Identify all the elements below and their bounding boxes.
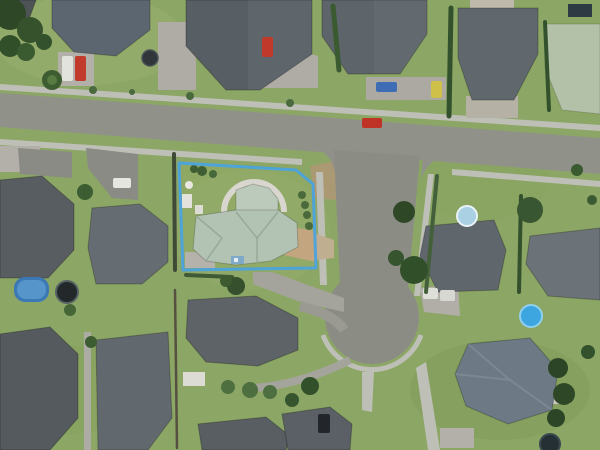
left-mid-trees-part: [77, 184, 93, 200]
parcel-east-shrubs-part: [303, 211, 311, 219]
aerial-map-stage: [0, 0, 600, 450]
palm-tree-part: [47, 75, 57, 85]
car-blue: [376, 82, 397, 92]
bulb-area-trees-part: [301, 377, 319, 395]
dome-pool-right: [457, 206, 477, 226]
hedge-parcel-west-part: [174, 154, 175, 270]
aerial-imagery[interactable]: [0, 0, 600, 450]
hedges-top-part: [449, 8, 451, 116]
car-white-house7: [113, 178, 131, 188]
footpath-stub-south: [362, 372, 374, 412]
junction-trees-part: [400, 256, 428, 284]
parcel-front-shrubs-part: [197, 166, 207, 176]
hero-shed-1: [182, 194, 192, 208]
car-black-bottom: [318, 414, 330, 433]
tree-cluster-top-left-part: [36, 34, 52, 50]
bottom-right-trees-part: [547, 409, 565, 427]
house-roof-9: [96, 332, 172, 450]
parcel-east-shrubs-part: [305, 222, 313, 230]
left-mid-trees-part: [85, 336, 97, 348]
bush-row-bottom-part: [263, 385, 277, 399]
garden-path-bl: [84, 332, 91, 450]
bush-row-bottom-part: [221, 380, 235, 394]
hero-shed-2: [195, 205, 203, 214]
shed-bottom-mid: [183, 372, 205, 386]
right-side-trees-part: [587, 195, 597, 205]
bottom-right-trees-part: [548, 358, 568, 378]
right-side-trees-part: [571, 164, 583, 176]
verge-shrubs-part: [286, 99, 294, 107]
parcel-front-shrubs-part: [209, 170, 217, 178]
trampoline-top: [142, 50, 158, 66]
solar-panel-top-right: [568, 4, 592, 17]
van-white-top-left: [62, 56, 73, 81]
parcel-east-shrubs-part: [301, 201, 309, 209]
bush-row-bottom-part: [242, 382, 258, 398]
tree-cluster-top-left-part: [17, 43, 35, 61]
palm-tree: [42, 70, 62, 90]
junction-trees-part: [388, 250, 404, 266]
bottom-right-trees-part: [581, 345, 595, 359]
junction-trees-part: [393, 201, 415, 223]
cul-de-sac-bulb: [325, 270, 419, 364]
trampoline-bottom-left: [56, 281, 78, 303]
pad-house13: [440, 428, 474, 448]
verge-shrubs-part: [89, 86, 97, 94]
bottom-right-trees-part: [553, 383, 575, 405]
verge-shrubs-part: [129, 89, 135, 95]
bulb-area-trees-part: [285, 393, 299, 407]
hero-blue-object-stripe: [234, 258, 238, 262]
parcel-front-shrubs-part: [190, 165, 198, 173]
car-yellow: [431, 81, 442, 98]
hero-tank: [185, 181, 193, 189]
house-roof-8: [0, 327, 78, 450]
verge-shrubs-part: [186, 92, 194, 100]
car-red-on-road: [362, 118, 382, 128]
driveway-house6: [18, 148, 72, 178]
pool-round-bottom-right: [520, 305, 542, 327]
car-red-driveway: [262, 37, 273, 57]
van-east-2: [440, 290, 455, 301]
left-mid-trees-part: [64, 304, 76, 316]
pool-bottom-left-water: [17, 280, 46, 299]
parcel-east-shrubs-part: [298, 191, 306, 199]
right-side-trees-part: [517, 197, 543, 223]
tree-below-parcel-part: [220, 275, 232, 287]
pool-dark-bottom-right: [540, 434, 560, 450]
car-red-top-left: [75, 56, 86, 81]
house-roof-7: [88, 204, 168, 284]
